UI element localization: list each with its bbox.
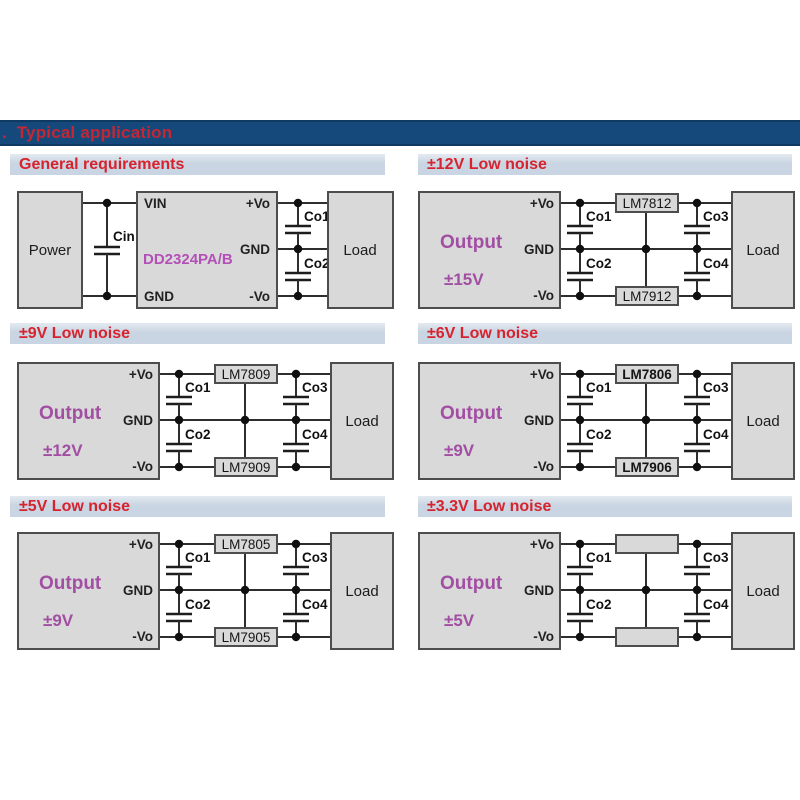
pin-gnd: GND bbox=[123, 583, 153, 598]
negative-regulator-label: LM7912 bbox=[623, 289, 672, 304]
load-label: Load bbox=[343, 242, 376, 259]
pin-vin: VIN bbox=[144, 196, 167, 211]
co3-label: Co3 bbox=[703, 209, 729, 224]
diagram-5v-low-noise: Output ±9V +Vo GND -Vo Co1 Co2 LM7805 LM… bbox=[14, 529, 399, 655]
output-voltage-label: ±15V bbox=[444, 270, 484, 289]
positive-regulator-label: LM7809 bbox=[222, 367, 271, 382]
pin-plus-vo: +Vo bbox=[246, 196, 270, 211]
pin-minus-vo: -Vo bbox=[533, 629, 554, 644]
output-voltage-label: ±9V bbox=[43, 611, 74, 630]
co1-label: Co1 bbox=[586, 209, 612, 224]
positive-regulator-label: LM7805 bbox=[222, 537, 271, 552]
co1-label: Co1 bbox=[185, 550, 211, 565]
section-header-9v-low-noise: ±9V Low noise bbox=[10, 323, 385, 344]
output-voltage-label: ±5V bbox=[444, 611, 475, 630]
co2-label: Co2 bbox=[586, 256, 612, 271]
negative-regulator-label: LM7909 bbox=[222, 460, 271, 475]
positive-regulator-label: LM7806 bbox=[622, 367, 672, 382]
typical-application-title-bar: .Typical application bbox=[0, 120, 800, 146]
pin-minus-vo: -Vo bbox=[132, 629, 153, 644]
diagram-12v-low-noise: Output ±15V +Vo GND -Vo Co1 Co2 LM7812 L… bbox=[415, 188, 800, 314]
diagram-6v-low-noise: Output ±9V +Vo GND -Vo Co1 Co2 LM7806 LM… bbox=[415, 359, 800, 485]
negative-regulator-box bbox=[616, 628, 678, 646]
co2-label: Co2 bbox=[304, 256, 330, 271]
output-voltage-label: ±9V bbox=[444, 441, 475, 460]
part-number-label: DD2324PA/B bbox=[143, 251, 233, 268]
pin-plus-vo: +Vo bbox=[530, 537, 554, 552]
co4-label: Co4 bbox=[302, 427, 328, 442]
pin-minus-vo: -Vo bbox=[533, 288, 554, 303]
co1-label: Co1 bbox=[304, 209, 330, 224]
diagram-3v3-low-noise: Output ±5V +Vo GND -Vo Co1 Co2 Co3 Co4 L… bbox=[415, 529, 800, 655]
co4-label: Co4 bbox=[302, 597, 328, 612]
pin-minus-vo: -Vo bbox=[249, 289, 270, 304]
pin-minus-vo: -Vo bbox=[132, 459, 153, 474]
pin-plus-vo: +Vo bbox=[129, 537, 153, 552]
co3-label: Co3 bbox=[302, 550, 328, 565]
negative-regulator-label: LM7906 bbox=[622, 460, 672, 475]
co1-label: Co1 bbox=[586, 380, 612, 395]
section-header-5v-low-noise: ±5V Low noise bbox=[10, 496, 385, 517]
positive-regulator-box bbox=[616, 535, 678, 553]
section-header-12v-low-noise: ±12V Low noise bbox=[418, 154, 792, 175]
section-header-general-requirements: General requirements bbox=[10, 154, 385, 175]
load-label: Load bbox=[345, 413, 378, 430]
pin-plus-vo: +Vo bbox=[129, 367, 153, 382]
pin-gnd-output: GND bbox=[240, 242, 270, 257]
positive-regulator-label: LM7812 bbox=[623, 196, 672, 211]
co2-label: Co2 bbox=[586, 597, 612, 612]
pin-gnd-input: GND bbox=[144, 289, 174, 304]
co1-label: Co1 bbox=[586, 550, 612, 565]
co4-label: Co4 bbox=[703, 427, 729, 442]
output-module-label: Output bbox=[440, 573, 503, 594]
pin-gnd: GND bbox=[123, 413, 153, 428]
section-header-3v3-low-noise: ±3.3V Low noise bbox=[418, 496, 792, 517]
co2-label: Co2 bbox=[185, 427, 211, 442]
co2-label: Co2 bbox=[586, 427, 612, 442]
title-prefix-mark: . bbox=[2, 123, 7, 142]
co4-label: Co4 bbox=[703, 597, 729, 612]
co4-label: Co4 bbox=[703, 256, 729, 271]
negative-regulator-label: LM7905 bbox=[222, 630, 271, 645]
cin-label: Cin bbox=[113, 229, 135, 244]
output-module-label: Output bbox=[39, 573, 102, 594]
pin-minus-vo: -Vo bbox=[533, 459, 554, 474]
output-module-label: Output bbox=[440, 403, 503, 424]
pin-plus-vo: +Vo bbox=[530, 196, 554, 211]
section-header-6v-low-noise: ±6V Low noise bbox=[418, 323, 792, 344]
output-voltage-label: ±12V bbox=[43, 441, 83, 460]
co3-label: Co3 bbox=[302, 380, 328, 395]
pin-gnd: GND bbox=[524, 242, 554, 257]
output-module-label: Output bbox=[440, 232, 503, 253]
power-label: Power bbox=[29, 242, 72, 259]
co2-label: Co2 bbox=[185, 597, 211, 612]
load-label: Load bbox=[746, 242, 779, 259]
pin-plus-vo: +Vo bbox=[530, 367, 554, 382]
capacitor-cin bbox=[94, 203, 120, 296]
pin-gnd: GND bbox=[524, 413, 554, 428]
load-label: Load bbox=[746, 583, 779, 600]
page-title: Typical application bbox=[17, 123, 173, 142]
load-label: Load bbox=[345, 583, 378, 600]
load-label: Load bbox=[746, 413, 779, 430]
co1-label: Co1 bbox=[185, 380, 211, 395]
output-module-label: Output bbox=[39, 403, 102, 424]
diagram-9v-low-noise: Output ±12V +Vo GND -Vo Co1 Co2 LM7809 L… bbox=[14, 359, 399, 485]
co3-label: Co3 bbox=[703, 380, 729, 395]
diagram-general-requirements: Power Cin VIN GND +Vo GND -Vo DD2324PA/B… bbox=[14, 188, 399, 314]
co3-label: Co3 bbox=[703, 550, 729, 565]
pin-gnd: GND bbox=[524, 583, 554, 598]
